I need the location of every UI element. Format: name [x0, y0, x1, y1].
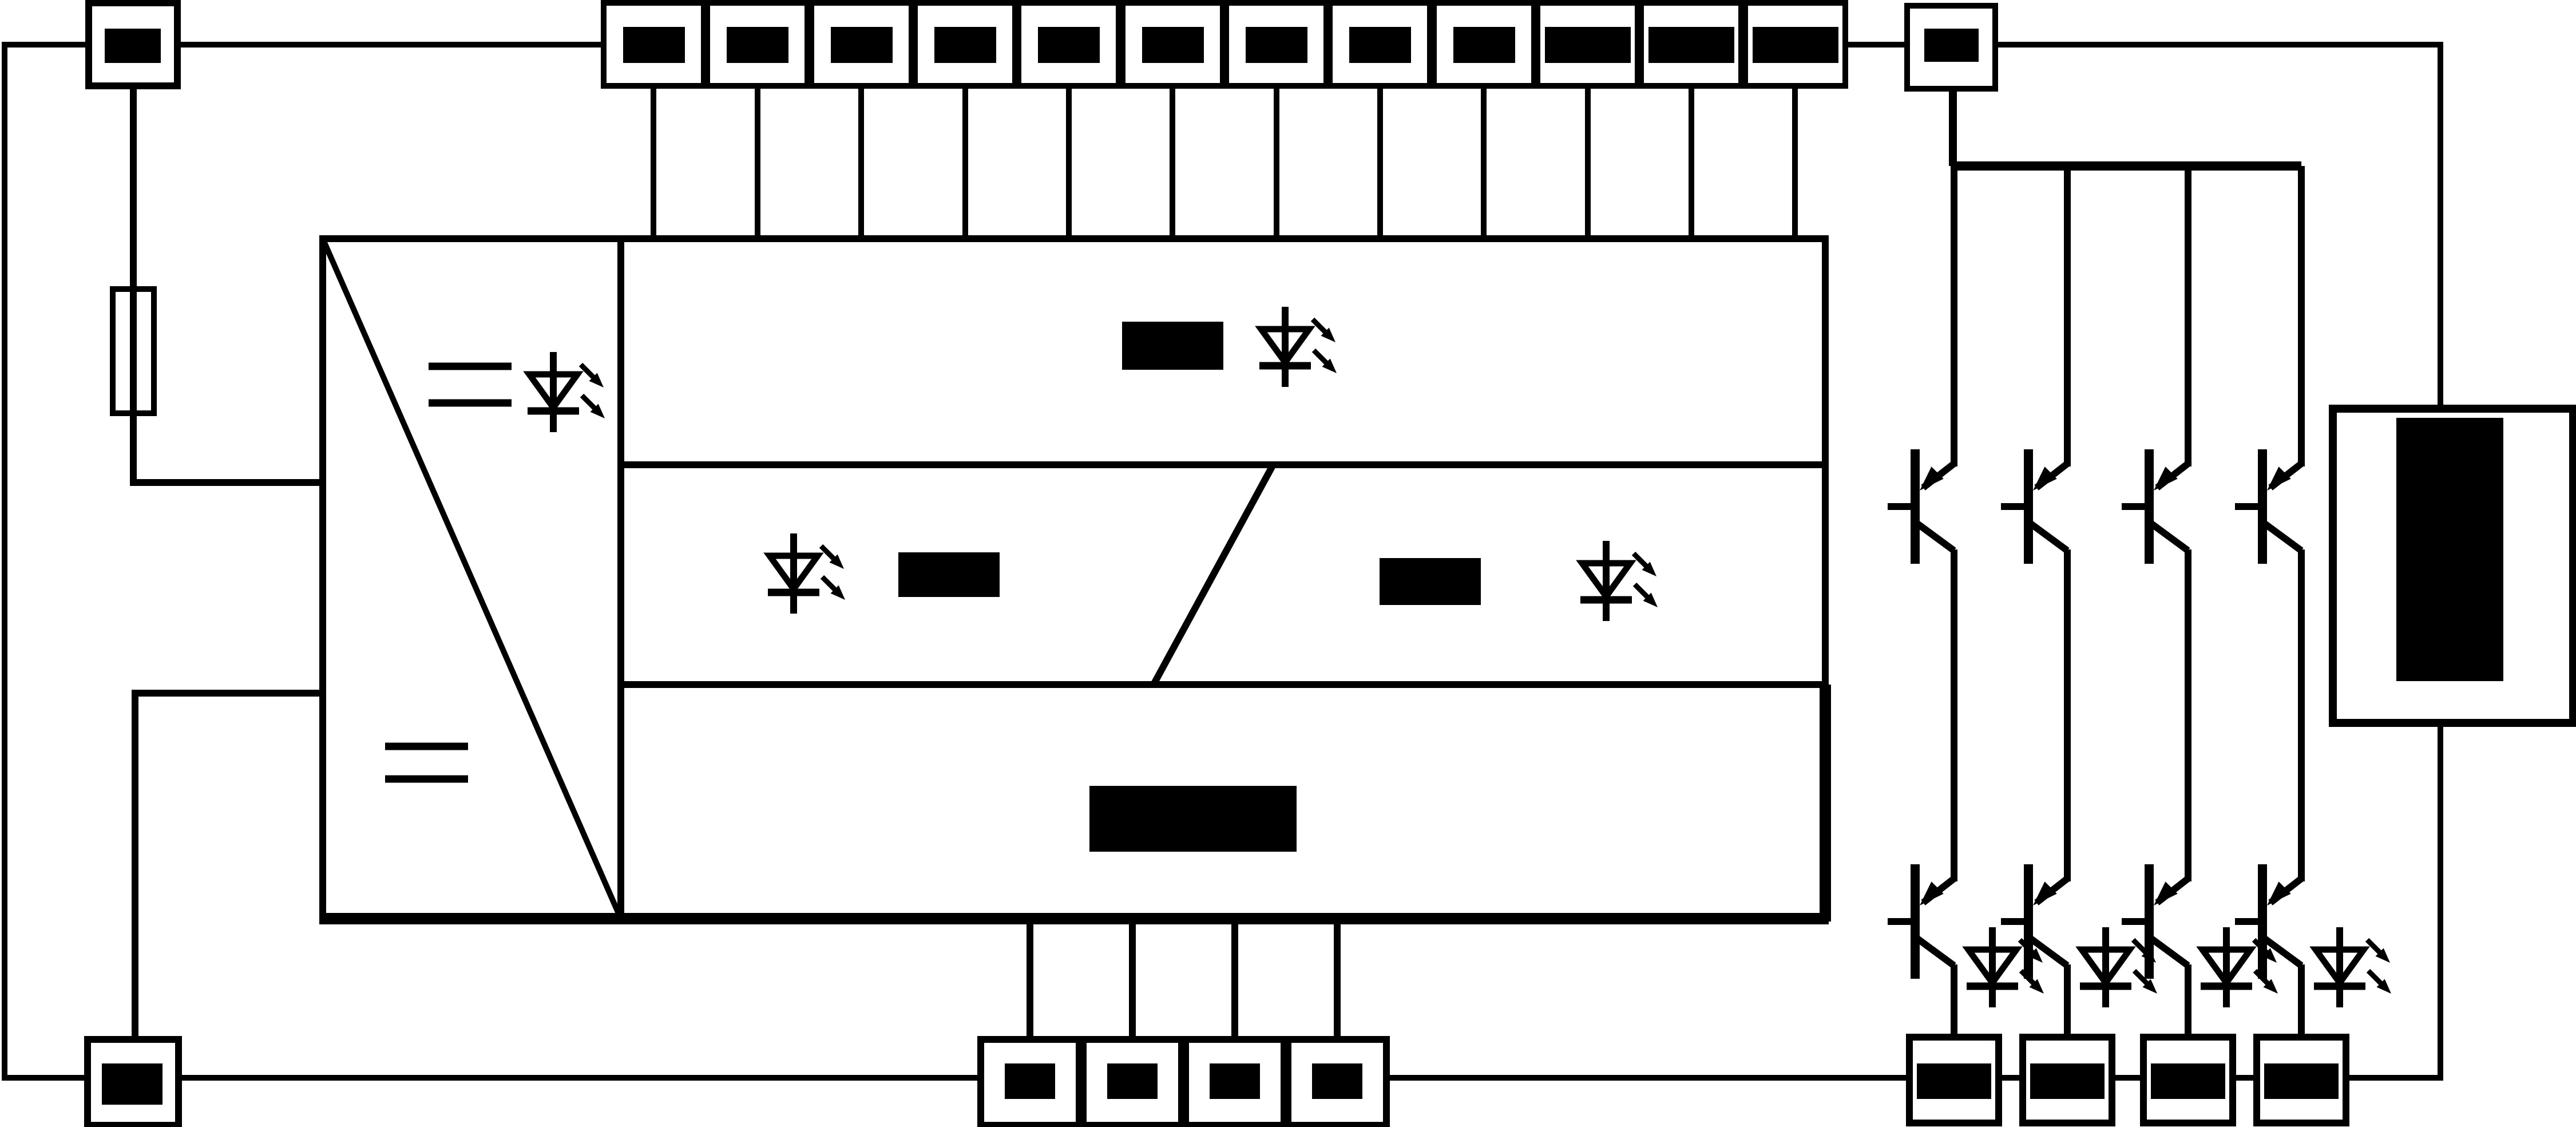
terminal-box-bottom-mid-2-redacted-label	[1107, 1063, 1158, 1099]
terminal-box-top-4-redacted-label	[934, 27, 996, 63]
transistor-icon-r1c1-emitter-lead	[1915, 522, 1954, 551]
terminal-box-top-10-redacted-label	[1545, 27, 1631, 63]
terminal-box-bottom-mid-4-redacted-label	[1312, 1063, 1362, 1099]
main-block-outline	[323, 239, 1825, 919]
transistor-icon-r1c2-emitter-lead	[2028, 522, 2067, 551]
terminal-box-top-9-redacted-label	[1453, 27, 1515, 63]
component-box-right-redacted-label	[2396, 418, 2503, 681]
terminal-box-top-5-redacted-label	[1038, 27, 1100, 63]
redacted-label-top-section	[1122, 322, 1223, 370]
terminal-box-top-8-redacted-label	[1349, 27, 1411, 63]
terminal-box-top-2-redacted-label	[727, 27, 788, 63]
transistor-icon-r2c1-emitter-lead	[1915, 937, 1954, 966]
redacted-label-middle-right	[1380, 558, 1481, 605]
terminal-box-top-left-redacted-label	[105, 29, 161, 63]
wire-fuse-feed	[133, 86, 323, 483]
terminal-box-bottom-right-4-redacted-label	[2264, 1063, 2339, 1099]
terminal-box-bottom-right-3-redacted-label	[2151, 1063, 2225, 1099]
terminal-box-top-1-redacted-label	[623, 27, 685, 63]
terminal-box-bottom-right-1-redacted-label	[1917, 1063, 1991, 1099]
wire-block-to-bottom-left	[135, 693, 323, 1039]
converter-diagonal-line	[323, 239, 621, 919]
transistor-icon-r1c3-emitter-lead	[2149, 522, 2188, 551]
terminal-box-bottom-left-redacted-label	[102, 1063, 163, 1105]
terminal-box-top-12-redacted-label	[1753, 27, 1838, 63]
redacted-label-bottom-section	[1089, 786, 1297, 852]
terminal-box-bottom-mid-3-redacted-label	[1210, 1063, 1260, 1099]
terminal-box-bottom-right-2-redacted-label	[2030, 1063, 2105, 1099]
circuit-diagram	[0, 0, 2576, 1127]
redacted-label-middle-left	[898, 552, 1000, 597]
terminal-box-top-7-redacted-label	[1246, 27, 1307, 63]
transistor-icon-r1c4-emitter-lead	[2262, 522, 2301, 551]
terminal-box-top-11-redacted-label	[1648, 27, 1734, 63]
schematic-page	[0, 0, 2576, 1127]
terminal-box-top-right-redacted-label	[1924, 29, 1979, 62]
terminal-box-top-6-redacted-label	[1142, 27, 1204, 63]
terminal-box-bottom-mid-1-redacted-label	[1005, 1063, 1055, 1099]
terminal-box-top-3-redacted-label	[831, 27, 893, 63]
middle-section-diagonal-line	[1154, 465, 1273, 685]
